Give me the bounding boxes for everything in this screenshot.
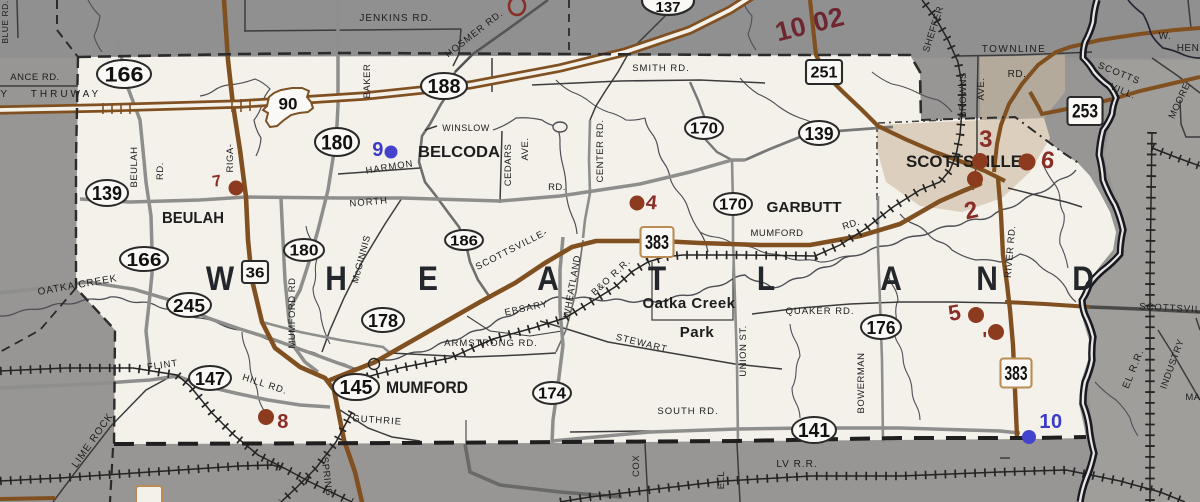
svg-text:178: 178	[368, 311, 398, 331]
svg-text:L: L	[757, 259, 775, 297]
svg-text:176: 176	[867, 318, 896, 338]
svg-text:383: 383	[1005, 363, 1028, 385]
svg-text:186: 186	[450, 233, 478, 250]
svg-text:BOWERMAN: BOWERMAN	[856, 353, 867, 414]
svg-text:N: N	[976, 259, 998, 297]
svg-text:QUAKER RD.: QUAKER RD.	[785, 306, 854, 317]
svg-text:CENTER RD.: CENTER RD.	[595, 119, 606, 182]
svg-text:139: 139	[92, 183, 122, 205]
svg-text:SOUTH RD.: SOUTH RD.	[657, 406, 718, 417]
svg-text:MUMFORD: MUMFORD	[386, 378, 468, 397]
svg-text:JENKINS RD.: JENKINS RD.	[359, 13, 432, 24]
svg-text:147: 147	[195, 369, 225, 389]
svg-text:137: 137	[655, 0, 680, 16]
svg-text:AVE.: AVE.	[976, 78, 987, 101]
svg-text:36: 36	[246, 265, 265, 282]
svg-text:AVE.: AVE.	[520, 138, 531, 161]
svg-text:383: 383	[645, 232, 669, 254]
svg-text:RD.: RD.	[1008, 69, 1027, 80]
svg-text:166: 166	[127, 250, 162, 270]
svg-text:ARMSTRONG RD.: ARMSTRONG RD.	[444, 338, 538, 349]
svg-text:BEULAH: BEULAH	[162, 210, 224, 227]
svg-text:WINSLOW: WINSLOW	[442, 123, 490, 133]
svg-text:': '	[982, 329, 987, 351]
svg-text:SMITH RD.: SMITH RD.	[632, 63, 690, 74]
svg-text:BLUE RD.: BLUE RD.	[0, 0, 10, 43]
svg-text:90: 90	[279, 95, 298, 114]
svg-text:188: 188	[428, 76, 461, 98]
svg-text:3: 3	[979, 126, 993, 153]
svg-text:GARBUTT: GARBUTT	[767, 199, 842, 216]
svg-text:145: 145	[340, 377, 373, 399]
svg-text:HEN: HEN	[1177, 43, 1200, 54]
svg-text:MA: MA	[1185, 392, 1200, 403]
svg-text:LV R.R.: LV R.R.	[776, 459, 817, 470]
svg-text:9: 9	[372, 139, 384, 161]
svg-text:MUMFORD: MUMFORD	[750, 228, 803, 239]
svg-text:BEULAH: BEULAH	[129, 146, 140, 187]
svg-text:RIGA-: RIGA-	[225, 144, 236, 173]
svg-text:W.: W.	[1159, 31, 1172, 42]
svg-text:180: 180	[321, 132, 353, 155]
svg-text:170: 170	[719, 197, 747, 214]
svg-text:251: 251	[811, 65, 838, 82]
svg-text:A: A	[537, 259, 559, 297]
svg-text:BELCODA: BELCODA	[418, 144, 500, 161]
svg-text:Oatka Creek: Oatka Creek	[642, 295, 735, 312]
svg-text:A: A	[880, 259, 902, 297]
svg-text:THRUWAY: THRUWAY	[31, 89, 101, 100]
svg-text:174: 174	[538, 386, 566, 403]
svg-text:170: 170	[690, 121, 718, 138]
svg-text:D: D	[1072, 259, 1094, 297]
svg-text:RD.: RD.	[548, 182, 566, 193]
svg-text:141: 141	[798, 420, 830, 442]
svg-text:Park: Park	[680, 324, 715, 341]
svg-text:CEDARS: CEDARS	[503, 144, 514, 187]
svg-text:BAKER: BAKER	[362, 64, 373, 99]
svg-text:ANCE RD.: ANCE RD.	[10, 72, 59, 83]
svg-text:H: H	[325, 259, 347, 297]
svg-text:8: 8	[277, 411, 289, 433]
svg-text:245: 245	[173, 296, 205, 316]
svg-text:253: 253	[1072, 102, 1098, 123]
svg-text:180: 180	[290, 243, 319, 260]
svg-text:BROWNS: BROWNS	[958, 72, 969, 118]
svg-text:Y: Y	[0, 89, 7, 100]
svg-text:COX: COX	[631, 455, 642, 477]
svg-text:10: 10	[1039, 411, 1062, 433]
svg-text:139: 139	[805, 124, 834, 144]
svg-text:W: W	[206, 259, 235, 297]
svg-text:T: T	[648, 259, 667, 297]
svg-text:RD.: RD.	[155, 162, 166, 180]
svg-text:UNION ST.: UNION ST.	[738, 325, 749, 376]
svg-text:166: 166	[105, 64, 144, 87]
svg-text:TOWNLINE: TOWNLINE	[982, 44, 1047, 55]
svg-text:E: E	[418, 259, 438, 297]
svg-text:MUMFORD RD: MUMFORD RD	[287, 278, 298, 349]
svg-text:SCOTTSVILLE: SCOTTSVILLE	[906, 152, 1022, 171]
svg-text:ELL: ELL	[716, 471, 727, 489]
